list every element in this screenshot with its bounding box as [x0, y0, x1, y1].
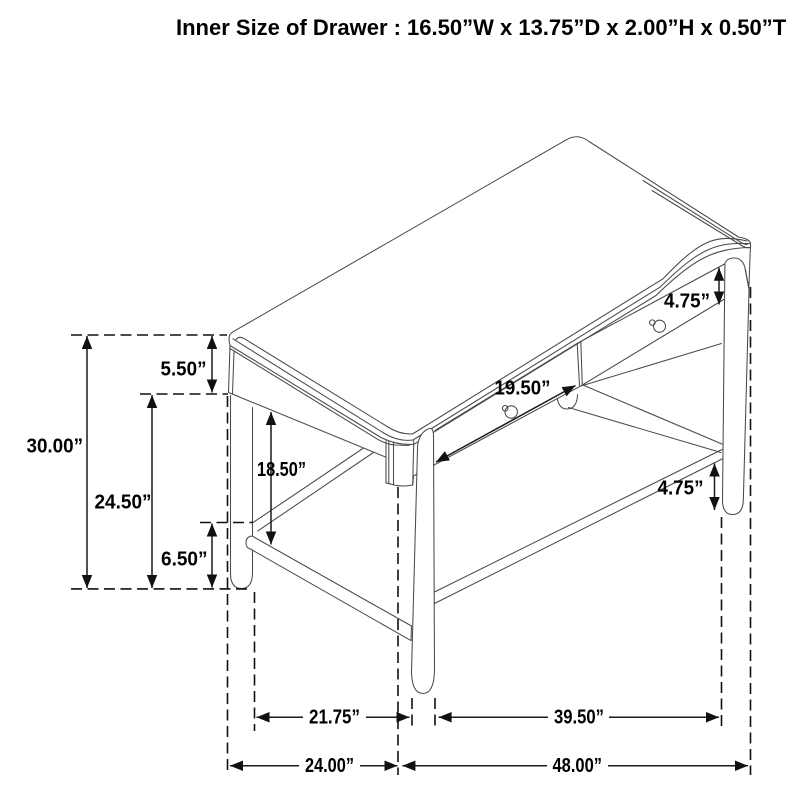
svg-text:6.50”: 6.50”: [161, 549, 208, 571]
svg-text:5.50”: 5.50”: [161, 359, 207, 381]
svg-text:39.50”: 39.50”: [554, 707, 604, 729]
svg-text:24.00”: 24.00”: [305, 755, 354, 777]
svg-text:30.00”: 30.00”: [27, 436, 84, 458]
svg-text:48.00”: 48.00”: [553, 755, 603, 777]
svg-text:4.75”: 4.75”: [664, 291, 710, 313]
svg-text:4.75”: 4.75”: [658, 478, 704, 500]
svg-text:19.50”: 19.50”: [495, 378, 551, 400]
svg-text:18.50”: 18.50”: [257, 459, 306, 481]
svg-text:Inner Size of Drawer : 16.50”W: Inner Size of Drawer : 16.50”W x 13.75”D…: [176, 15, 787, 40]
svg-text:24.50”: 24.50”: [95, 492, 152, 514]
svg-text:21.75”: 21.75”: [309, 707, 360, 729]
